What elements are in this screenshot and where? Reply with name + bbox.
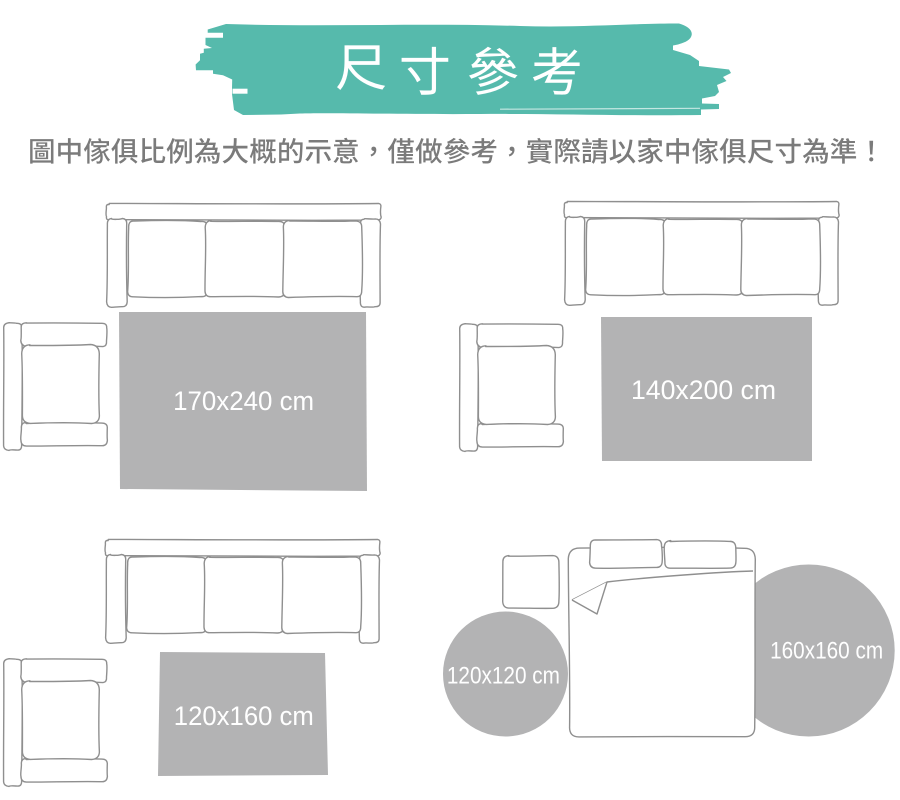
svg-text:120x120 cm: 120x120 cm	[447, 662, 560, 689]
svg-text:160x160 cm: 160x160 cm	[770, 638, 883, 665]
svg-text:140x200 cm: 140x200 cm	[631, 375, 776, 405]
svg-text:170x240 cm: 170x240 cm	[173, 386, 314, 416]
svg-text:120x160 cm: 120x160 cm	[174, 701, 314, 731]
